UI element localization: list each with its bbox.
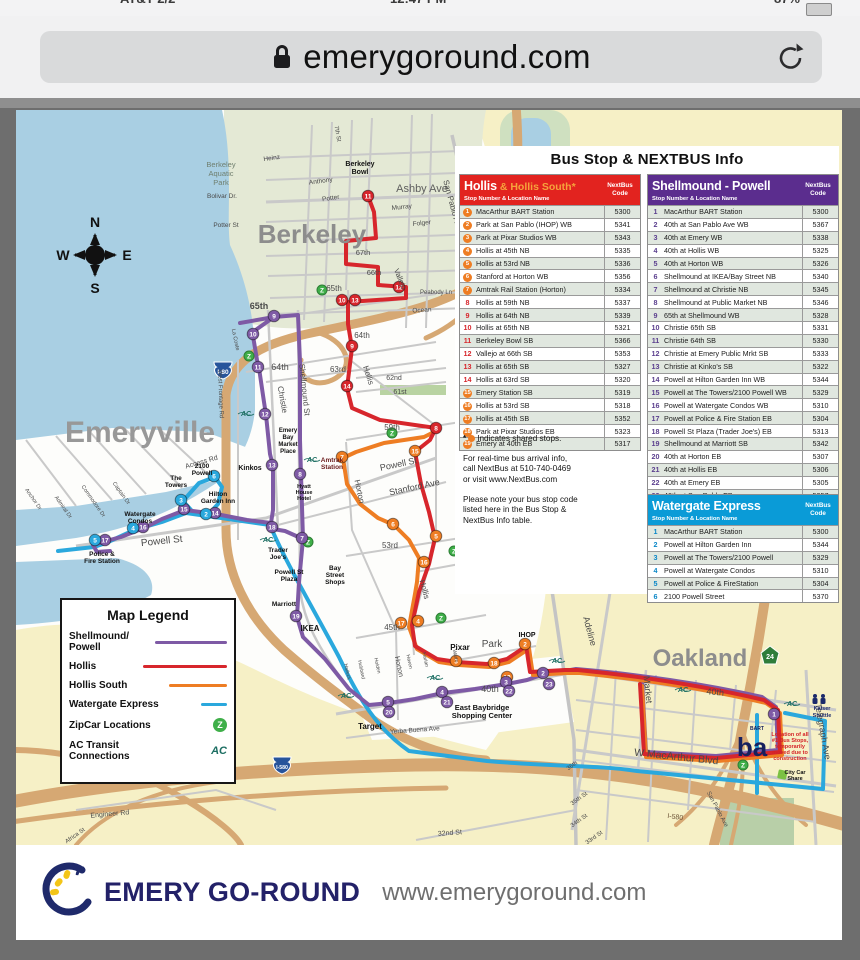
stop-row: 16Hollis at 53rd SB5318 [460,398,640,411]
svg-text:2: 2 [204,511,208,518]
svg-text:Berkeley: Berkeley [258,219,367,249]
svg-text:9: 9 [350,343,354,350]
svg-text:Aquatic: Aquatic [208,169,233,178]
legend-item: AC TransitConnectionsAC [69,740,227,762]
svg-text:8: 8 [298,471,302,478]
svg-text:Z: Z [247,353,251,360]
stop-row: 11Berkeley Bowl SB5366 [460,334,640,347]
svg-text:Kinkos: Kinkos [238,465,261,472]
legend-title: Map Legend [69,607,227,623]
svg-text:19: 19 [292,613,300,620]
stop-row: 14Hollis at 63rd SB5320 [460,373,640,386]
svg-text:15: 15 [180,506,188,513]
table-header: Shellmound - PowellStop Number & Locatio… [648,175,838,205]
svg-text:6: 6 [391,521,395,528]
svg-text:Fire Station: Fire Station [84,558,120,565]
svg-text:8: 8 [434,425,438,432]
svg-text:AC: AC [262,537,274,544]
svg-text:14: 14 [343,383,351,390]
svg-text:Berkeley: Berkeley [345,161,374,168]
svg-text:Oakland: Oakland [653,645,748,672]
stop-row: 8Hollis at 59th NB5337 [460,295,640,308]
svg-text:AC: AC [429,675,441,682]
svg-text:22: 22 [505,688,513,695]
svg-text:Marriott: Marriott [272,601,297,608]
table-header: Watergate ExpressStop Number & Location … [648,495,838,525]
svg-text:Bolivar Dr.: Bolivar Dr. [207,193,237,200]
svg-text:2: 2 [541,670,545,677]
shellmound-powell-table: Shellmound - PowellStop Number & Locatio… [647,174,839,502]
svg-text:Shops: Shops [325,579,345,586]
stop-row: 15Emery Station SB5319 [460,385,640,398]
svg-text:4: 4 [416,618,420,625]
stop-row: 2Powell at Hilton Garden Inn5344 [648,538,838,551]
svg-text:45th: 45th [384,623,400,632]
svg-text:construction: construction [773,756,807,762]
stop-row: 13Christie at Kinko's SB5322 [648,360,838,373]
legend-items: Shellmound/PowellHollisHollis SouthWater… [69,631,227,762]
svg-text:IHOP: IHOP [518,632,535,639]
legend-item: Watergate Express [69,699,227,710]
footer: EMERY GO-ROUND www.emerygoround.com [16,845,842,940]
svg-text:Emeryville: Emeryville [65,416,215,449]
stop-row: 3Park at Pixar Studios WB5343 [460,231,640,244]
svg-text:AC: AC [340,693,352,700]
svg-text:65th: 65th [326,284,342,293]
svg-text:59th: 59th [384,423,400,432]
svg-text:18: 18 [268,524,276,531]
svg-text:67th: 67th [356,248,371,257]
svg-text:7: 7 [300,535,304,542]
battery-icon [806,3,832,16]
svg-text:63rd: 63rd [330,365,346,374]
svg-text:Plaza: Plaza [281,576,298,583]
svg-text:12: 12 [261,411,269,418]
svg-text:13: 13 [351,297,359,304]
legend-item: Hollis [69,661,227,672]
svg-text:Peabody Ln: Peabody Ln [420,290,452,296]
panel-notes: *Indicates shared stops.For real-time bu… [463,434,635,536]
svg-text:53rd: 53rd [382,541,398,550]
svg-text:5: 5 [386,699,390,706]
stop-row: 7Shellmound at Christie NB5345 [648,282,838,295]
svg-text:Hotel: Hotel [297,496,311,502]
stop-row: 4Hollis at 45th NB5335 [460,244,640,257]
svg-text:4: 4 [131,525,135,532]
svg-text:Ocean: Ocean [412,306,432,314]
svg-text:Hilton: Hilton [209,491,227,498]
url-text: emerygoround.com [303,38,591,76]
svg-text:Condos: Condos [128,518,153,525]
svg-text:5: 5 [93,537,97,544]
stop-row: 6Stanford at Horton WB5356 [460,269,640,282]
stop-row: 62100 Powell Street5370 [648,589,838,602]
svg-text:AC: AC [240,411,252,418]
svg-text:2100: 2100 [195,463,210,470]
bus-stop-info-panel: Bus Stop & NEXTBUS Info Hollis& Hollis S… [455,146,839,594]
map-page: ZZZZZZZ ACACACACACACACAC I-80I-80I-58024… [16,110,842,940]
legend-item: Hollis South [69,680,227,691]
stop-row: 1MacArthur BART Station5300 [648,205,838,218]
page-background-band [0,98,860,108]
svg-text:Amtrak: Amtrak [321,457,344,464]
legend-item: ZipCar LocationsZ [69,718,227,732]
svg-text:Trader: Trader [268,547,288,554]
svg-text:Market: Market [278,442,297,448]
svg-text:Bowl: Bowl [352,169,369,176]
svg-text:Z: Z [439,615,443,622]
svg-text:40th: 40th [706,686,724,697]
svg-text:61st: 61st [393,389,406,396]
svg-text:Park: Park [213,178,229,187]
svg-text:10: 10 [338,297,346,304]
svg-text:Powell: Powell [192,470,213,477]
svg-text:Emery: Emery [279,428,298,434]
stop-row: 10Hollis at 65th NB5321 [460,321,640,334]
svg-text:Place: Place [280,449,296,455]
battery-text: 87% [774,0,800,6]
svg-text:Joe's: Joe's [270,554,287,561]
svg-text:16: 16 [139,524,147,531]
stop-row: 7Amtrak Rail Station (Horton)5334 [460,282,640,295]
stop-row: 11Christie 64th SB5330 [648,334,838,347]
map-legend: Map Legend Shellmound/PowellHollisHollis… [60,598,236,784]
svg-text:Station: Station [321,464,343,471]
stop-row: 2140th at Hollis EB5306 [648,463,838,476]
emery-go-round-logo [38,860,94,925]
stop-row: 1MacArthur BART Station5300 [648,525,838,538]
svg-text:5: 5 [434,533,438,540]
stop-row: 9Hollis at 64th NB5339 [460,308,640,321]
svg-text:Potter St: Potter St [213,222,238,229]
stop-row: 15Powell at The Towers/2100 Powell WB532… [648,385,838,398]
zipcar-icon: Z [213,718,227,732]
table-header: Hollis& Hollis South*Stop Number & Locat… [460,175,640,205]
footer-site-url: www.emerygoround.com [382,879,646,907]
svg-text:Bay: Bay [282,435,294,441]
reload-button[interactable] [776,42,806,79]
watergate-express-table: Watergate ExpressStop Number & Location … [647,494,839,603]
lock-icon [271,42,293,72]
svg-text:Powell St: Powell St [275,569,305,576]
stop-row: 5Powell at Police & FireStation5304 [648,577,838,590]
svg-text:62nd: 62nd [386,375,402,382]
svg-text:17: 17 [101,537,109,544]
svg-text:Ashby Ave: Ashby Ave [396,183,448,195]
svg-text:IKEA: IKEA [300,624,319,633]
stop-row: 18Powell St Plaza (Trader Joe's) EB5313 [648,424,838,437]
svg-text:11: 11 [255,364,262,371]
svg-text:AC: AC [306,457,318,464]
svg-text:The: The [170,475,182,482]
stop-row: 3Powell at The Towers/2100 Powell5329 [648,551,838,564]
stop-row: 17Hollis at 45th SB5352 [460,411,640,424]
stop-row: 1MacArthur BART Station5300 [460,205,640,218]
svg-text:N: N [90,214,100,230]
stop-row: 2040th at Horton EB5307 [648,450,838,463]
ac-transit-icon: AC [211,745,227,757]
stop-row: 16Powell at Watergate Condos WB5310 [648,398,838,411]
stop-row: 12Christie at Emery Public Mrkt SB5333 [648,347,838,360]
svg-text:64th: 64th [354,331,370,340]
svg-text:14: 14 [211,510,219,517]
svg-text:AC: AC [677,687,689,694]
stop-row: 4Powell at Watergate Condos5310 [648,564,838,577]
svg-text:15: 15 [411,448,419,455]
svg-text:18: 18 [490,660,498,667]
svg-text:Street: Street [326,572,345,579]
svg-text:6: 6 [212,473,216,480]
stop-row: 2240th at Emery EB5305 [648,476,838,489]
svg-text:S: S [90,280,99,296]
stop-row: 6Shellmound at IKEA/Bay Street NB5340 [648,269,838,282]
legend-item: Shellmound/Powell [69,631,227,653]
svg-text:W: W [56,247,70,263]
svg-text:23: 23 [545,681,553,688]
svg-text:11: 11 [365,193,372,200]
stop-row: 440th at Hollis WB5325 [648,244,838,257]
stop-row: 12Vallejo at 66th SB5353 [460,347,640,360]
svg-text:4: 4 [440,689,444,696]
stop-row: 540th at Horton WB5326 [648,257,838,270]
svg-text:Z: Z [320,287,324,294]
svg-text:64th: 64th [271,362,289,372]
svg-text:Park: Park [482,639,504,650]
stop-row: 13Hollis at 65th SB5327 [460,360,640,373]
svg-text:Towers: Towers [165,482,188,489]
svg-text:Berkeley: Berkeley [206,160,235,169]
svg-text:16: 16 [420,559,428,566]
footer-brand: EMERY GO-ROUND [104,877,360,908]
svg-text:20: 20 [385,709,393,716]
url-field[interactable]: emerygoround.com [40,31,822,83]
stop-row: 14Powell at Hilton Garden Inn WB5344 [648,373,838,386]
svg-text:Shopping Center: Shopping Center [452,711,512,720]
svg-text:3: 3 [179,497,183,504]
svg-text:65th: 65th [250,301,269,311]
svg-text:Share: Share [787,776,802,782]
svg-text:Police &: Police & [89,551,115,558]
svg-text:I-580: I-580 [276,765,288,771]
stop-row: 17Powell at Police & Fire Station EB5304 [648,411,838,424]
stop-row: 8Shellmound at Public Market NB5346 [648,295,838,308]
svg-text:Kaiser: Kaiser [814,706,832,712]
svg-text:ba: ba [737,732,768,762]
svg-text:Watergate: Watergate [124,511,156,518]
svg-text:2: 2 [523,641,527,648]
browser-chrome: emerygoround.com [0,16,860,98]
svg-text:AC: AC [551,658,563,665]
svg-text:1: 1 [772,711,776,718]
stop-row: 10Christie 65th SB5331 [648,321,838,334]
svg-text:Garden Inn: Garden Inn [201,498,235,505]
svg-text:E: E [122,247,131,263]
svg-text:Shuttle: Shuttle [813,713,832,719]
hollis-table: Hollis& Hollis South*Stop Number & Locat… [459,174,641,451]
svg-text:9: 9 [272,313,276,320]
stop-row: 5Hollis at 53rd NB5336 [460,257,640,270]
status-bar: AT&T 2/2 12:47 PM 87% [0,0,860,16]
svg-text:AC: AC [786,701,798,708]
stop-row: 240th at San Pablo Ave WB5367 [648,218,838,231]
svg-text:21: 21 [443,699,451,706]
stop-row: 965th at Shellmound WB5328 [648,308,838,321]
panel-title: Bus Stop & NEXTBUS Info [455,151,839,168]
carrier-text: AT&T 2/2 [120,0,175,6]
svg-text:Z: Z [741,762,745,769]
stop-row: 19Shellmound at Marriott SB5342 [648,437,838,450]
svg-text:66th: 66th [367,268,382,277]
svg-text:24: 24 [766,654,774,661]
stop-row: 2Park at San Pablo (IHOP) WB5341 [460,218,640,231]
stop-row: 340th at Emery WB5338 [648,231,838,244]
svg-text:13: 13 [268,462,276,469]
svg-text:40th: 40th [481,684,499,694]
clock-text: 12:47 PM [390,0,446,6]
svg-text:10: 10 [249,331,257,338]
svg-text:Target: Target [358,722,382,731]
svg-text:Bay: Bay [329,565,341,572]
